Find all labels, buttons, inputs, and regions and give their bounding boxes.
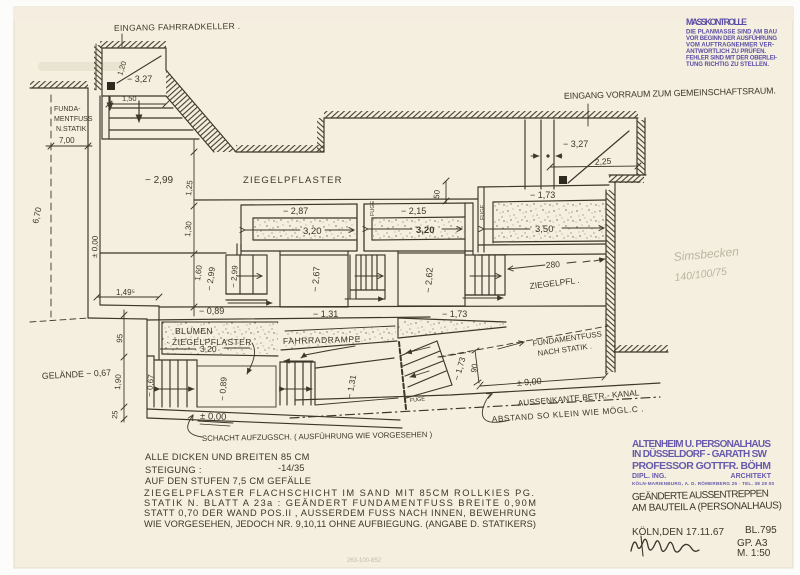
svg-text:1,30: 1,30: [183, 220, 194, 237]
svg-text:− 2,99: − 2,99: [229, 265, 240, 289]
svg-text:3,20: 3,20: [416, 225, 435, 236]
svg-text:-14/35: -14/35: [278, 463, 304, 473]
svg-text:1,90: 1,90: [113, 373, 123, 390]
svg-text:M. 1:50: M. 1:50: [737, 548, 771, 559]
svg-text:FUGE: FUGE: [480, 204, 486, 220]
svg-text:PROFESSOR GOTTFR. BÖHM: PROFESSOR GOTTFR. BÖHM: [632, 459, 771, 472]
svg-text:− 3,27: − 3,27: [563, 139, 588, 149]
svg-text:95: 95: [115, 333, 125, 343]
svg-text:KÖLN-MARIENBURG, A. D. RÖMERBE: KÖLN-MARIENBURG, A. D. RÖMERBERG 25 · TE…: [632, 480, 774, 486]
svg-text:1,50: 1,50: [122, 94, 137, 103]
svg-text:− 2,87: − 2,87: [283, 206, 308, 216]
svg-text:AUF DEN STUFEN 7,5 CM GEFÄLL: AUF DEN STUFEN 7,5 CM GEFÄLLE: [145, 476, 311, 486]
svg-text:MASSKONTROLLE: MASSKONTROLLE: [686, 17, 747, 27]
svg-text:FUGE: FUGE: [370, 200, 376, 216]
svg-text:− 1,73: − 1,73: [442, 309, 467, 319]
svg-text:FAHRRADRAMPE: FAHRRADRAMPE: [283, 334, 361, 346]
svg-text:ARCHITEKT: ARCHITEKT: [731, 473, 772, 480]
svg-text:3,20: 3,20: [200, 344, 217, 354]
svg-text:N.STATIK: N.STATIK: [56, 126, 87, 133]
svg-text:VOM AUFTRAGNEHMER VER-: VOM AUFTRAGNEHMER VER-: [686, 43, 774, 49]
svg-text:VOR BEGINN DER AUSFÜHRUNG: VOR BEGINN DER AUSFÜHRUNG: [686, 35, 777, 42]
svg-text:FEHLER SIND MIT DER OBERLEI-: FEHLER SIND MIT DER OBERLEI-: [686, 56, 777, 62]
svg-text:DIE PLANMASSE SIND AM BAU: DIE PLANMASSE SIND AM BAU: [686, 30, 777, 36]
svg-text:25: 25: [110, 410, 120, 419]
svg-text:2,25: 2,25: [594, 156, 611, 167]
svg-text:ZIEGELPFLASTER FLACHSCHICHT IM: ZIEGELPFLASTER FLACHSCHICHT IM SAND MIT …: [144, 488, 534, 498]
svg-text:− 2,67: − 2,67: [310, 266, 322, 292]
svg-text:− 0,67: − 0,67: [145, 374, 156, 398]
svg-text:3,20: 3,20: [303, 226, 322, 237]
svg-text:7,00: 7,00: [59, 136, 75, 145]
svg-text:− 1,73: − 1,73: [530, 190, 555, 200]
svg-text:TUNG RICHTIG ZU STELLEN.: TUNG RICHTIG ZU STELLEN.: [686, 62, 769, 68]
svg-text:BL.795: BL.795: [745, 525, 777, 536]
svg-text:DIPL. ING.: DIPL. ING.: [632, 473, 666, 480]
svg-text:− 2,99: − 2,99: [145, 175, 174, 186]
svg-text:280: 280: [545, 259, 560, 270]
svg-text:− 2,62: − 2,62: [423, 267, 435, 293]
svg-text:STATT 0,70 DER WAND POS.II , A: STATT 0,70 DER WAND POS.II , AUSSERDEM F…: [144, 508, 536, 518]
svg-text:− 1,31: − 1,31: [313, 309, 338, 319]
svg-text:IN DÜSSELDORF - GARATH SW: IN DÜSSELDORF - GARATH SW: [632, 447, 768, 460]
svg-text:FUNDA-: FUNDA-: [54, 106, 81, 113]
svg-text:ZIEGELPFLASTER: ZIEGELPFLASTER: [243, 175, 343, 186]
svg-text:WIE VORGESEHEN, JEDOCH NR. 9,1: WIE VORGESEHEN, JEDOCH NR. 9,10,11 OHNE …: [144, 519, 536, 529]
svg-text:50: 50: [432, 189, 442, 199]
svg-text:ANTWORTLICH ZU PRÜFEN.: ANTWORTLICH ZU PRÜFEN.: [686, 48, 766, 55]
svg-text:KÖLN,DEN 17.11.67: KÖLN,DEN 17.11.67: [632, 526, 724, 538]
svg-text:STEIGUNG :: STEIGUNG :: [145, 465, 202, 475]
svg-text:263-100-852: 263-100-852: [347, 558, 382, 564]
svg-text:1,49⁵: 1,49⁵: [116, 288, 135, 297]
svg-text:− 2,15: − 2,15: [401, 206, 426, 216]
svg-text:BLUMEN: BLUMEN: [175, 326, 213, 336]
svg-text:ALLE DICKEN UND BREITEN 85 C: ALLE DICKEN UND BREITEN 85 CM: [145, 452, 310, 462]
svg-text:− 3,27: − 3,27: [127, 74, 152, 84]
svg-text:± 0,00: ± 0,00: [90, 235, 100, 258]
svg-text:± 0,00: ± 0,00: [200, 411, 227, 423]
svg-text:MENTFUSS: MENTFUSS: [54, 116, 93, 123]
svg-text:3,50: 3,50: [535, 224, 554, 235]
svg-text:− 0,89: − 0,89: [217, 376, 229, 401]
svg-text:1,25: 1,25: [184, 179, 195, 196]
svg-text:− 0,89: − 0,89: [199, 306, 224, 316]
